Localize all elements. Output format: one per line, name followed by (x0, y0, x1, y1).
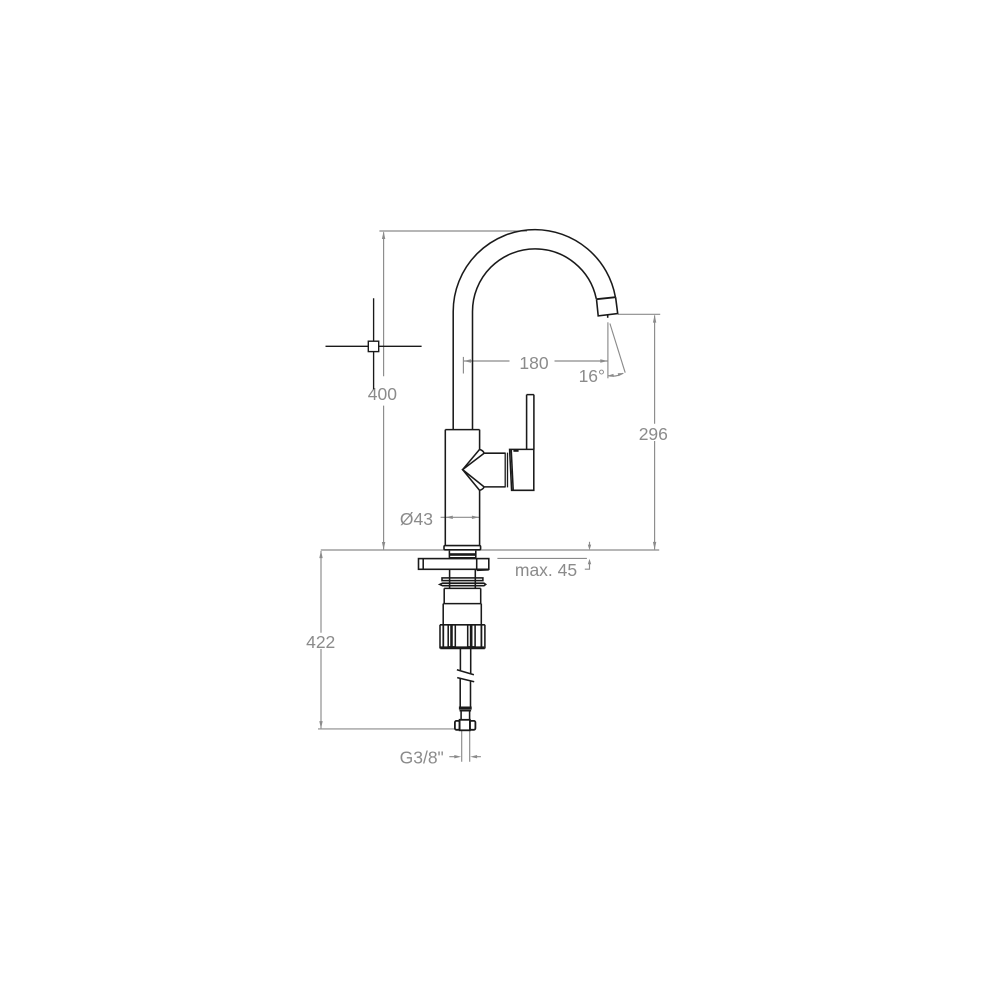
svg-text:max. 45: max. 45 (515, 560, 577, 580)
svg-text:16°: 16° (579, 366, 605, 386)
svg-text:Ø43: Ø43 (400, 509, 433, 529)
svg-text:422: 422 (306, 632, 335, 652)
svg-text:G3/8": G3/8" (400, 748, 444, 768)
svg-text:296: 296 (639, 424, 668, 444)
svg-text:180: 180 (519, 353, 548, 373)
svg-text:400: 400 (368, 384, 397, 404)
